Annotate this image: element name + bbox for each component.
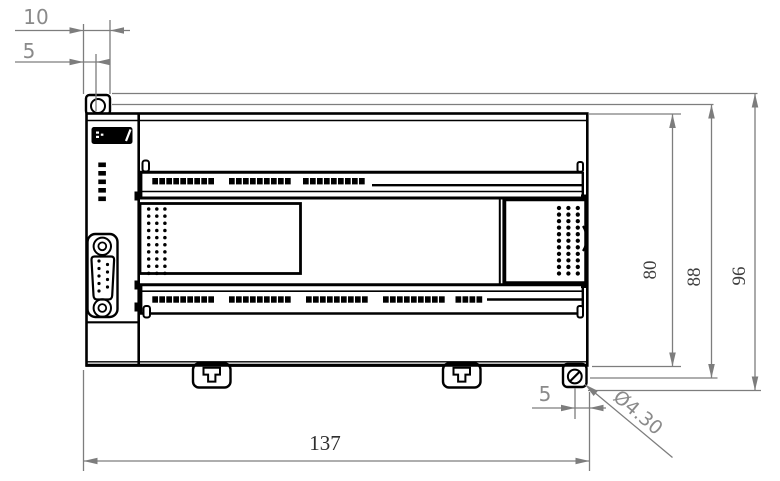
dim-label-overall-height: 96	[729, 267, 750, 286]
display-window	[92, 127, 133, 144]
din-rail-clip-right	[443, 364, 481, 388]
lower-terminal-screws	[152, 296, 482, 302]
din-rail-clip-left	[193, 364, 231, 388]
plc-device	[86, 95, 588, 388]
top-mounting-ear	[86, 95, 110, 115]
dim-label-overall-width: 137	[309, 431, 341, 455]
dim-label-top-ear-width: 10	[23, 5, 48, 29]
body-outline	[87, 114, 588, 366]
dim-label-bottom-hole-offset: 5	[539, 382, 552, 406]
bottom-mounting-ear	[563, 364, 587, 387]
dim-label-top-hole-offset: 5	[23, 39, 36, 63]
dim-label-hole-diameter: Ø4.30	[609, 386, 667, 440]
dim-label-body-height: 80	[640, 261, 661, 280]
upper-terminal-screws	[152, 178, 364, 184]
plc-dimension-drawing: 10 5 80 88 96 5 Ø4.30 137	[0, 0, 780, 481]
dim-label-hole-spacing: 88	[684, 268, 705, 287]
dimension-drawing-canvas: 10 5 80 88 96 5 Ø4.30 137	[0, 0, 780, 481]
top-mounting-hole	[91, 99, 105, 113]
